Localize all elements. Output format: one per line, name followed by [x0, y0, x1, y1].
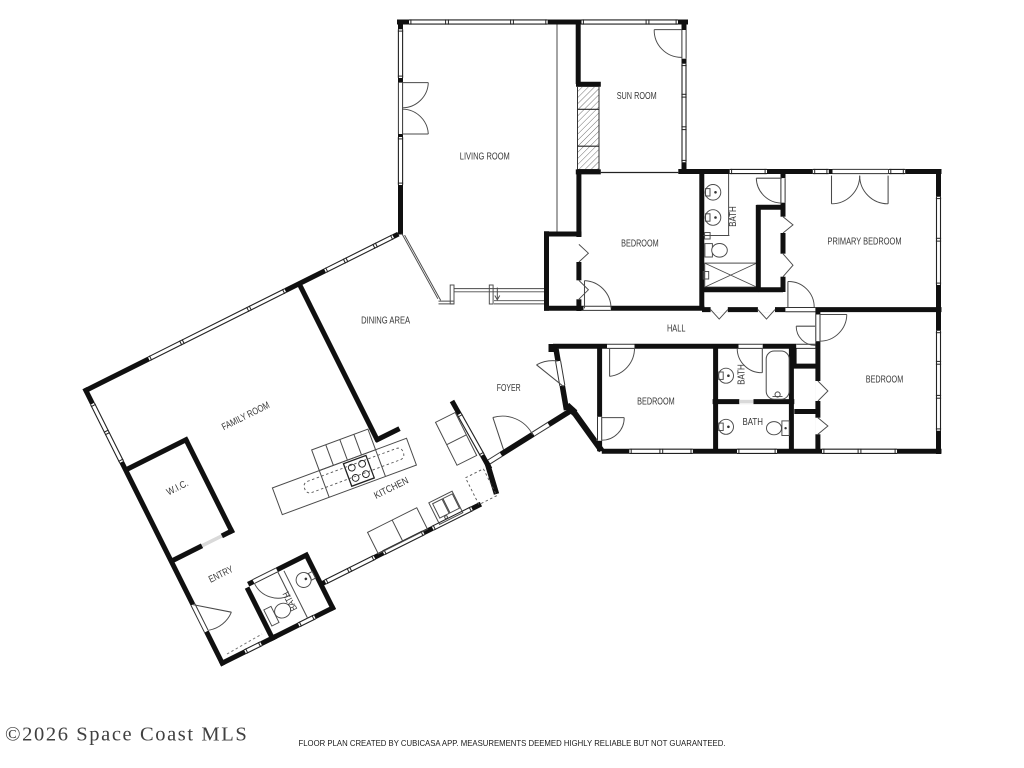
svg-text:BEDROOM: BEDROOM [621, 239, 659, 250]
svg-text:BEDROOM: BEDROOM [637, 397, 675, 408]
svg-text:BATH: BATH [736, 364, 747, 385]
svg-text:FLOOR PLAN CREATED BY CUBICASA: FLOOR PLAN CREATED BY CUBICASA APP. MEAS… [299, 738, 726, 748]
svg-text:PRIMARY BEDROOM: PRIMARY BEDROOM [828, 237, 902, 248]
svg-text:SUN ROOM: SUN ROOM [617, 91, 657, 102]
svg-text:HALL: HALL [667, 324, 686, 335]
svg-text:FOYER: FOYER [497, 383, 521, 394]
svg-text:DINING AREA: DINING AREA [361, 315, 410, 326]
svg-text:BATH: BATH [742, 417, 763, 428]
svg-text:BEDROOM: BEDROOM [866, 375, 904, 386]
svg-text:BATH: BATH [728, 206, 739, 227]
svg-text:©2026 Space Coast MLS: ©2026 Space Coast MLS [5, 724, 248, 746]
svg-text:LIVING ROOM: LIVING ROOM [460, 151, 510, 162]
